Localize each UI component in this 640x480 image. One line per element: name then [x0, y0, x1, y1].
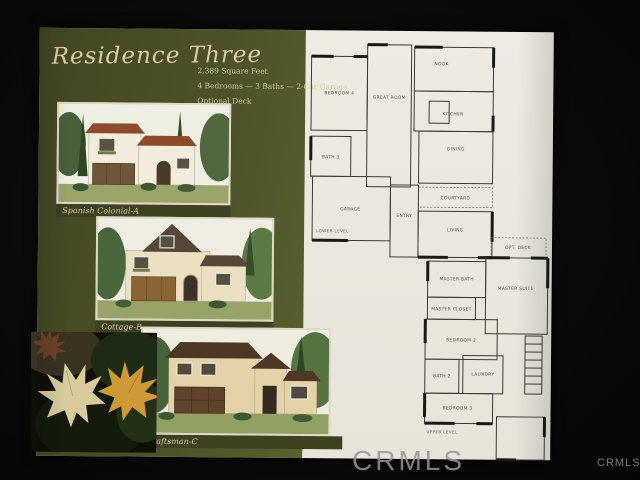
level-label-upper: UPPER LEVEL: [426, 429, 458, 434]
elevation-illustration-craftsman: [140, 327, 331, 437]
room-label-opt-deck: OPT. DECK: [505, 245, 531, 251]
floorplan-lower-level: BEDROOM 4 BATH 3 GREAT ROOM NOOK KITCHEN…: [308, 34, 510, 264]
elevation-card-craftsman: Craftsman-C: [140, 327, 331, 450]
room-label-bath2: BATH 2: [433, 373, 451, 379]
room-label-laundry: LAUNDRY: [471, 372, 494, 378]
room-label-entry: ENTRY: [396, 213, 412, 219]
elevation-illustration-cottage: [95, 216, 274, 322]
room-label-master-closet: MASTER CLOSET: [431, 306, 472, 312]
elevation-card-cottage: Cottage-B: [95, 216, 274, 335]
elevation-card-spanish-colonial: Spanish Colonial-A: [56, 102, 231, 219]
elevation-illustration-spanish-colonial: [56, 102, 231, 206]
spec-square-feet: 2,389 Square Feet: [197, 63, 317, 79]
room-label-bedroom3: BEDROOM 3: [443, 405, 473, 411]
room-label-bedroom2: BEDROOM 2: [446, 337, 476, 343]
room-label-dining: DINING: [447, 146, 465, 152]
room-label-kitchen: KITCHEN: [443, 111, 464, 117]
spec-beds-baths-garage: 4 Bedrooms — 3 Baths — 2-Car Garage: [197, 78, 317, 94]
leaves-photo: [30, 332, 157, 453]
room-label-master-suite: MASTER SUITE: [498, 286, 534, 292]
room-label-garage: GARAGE: [340, 206, 360, 212]
elevation-caption: Craftsman-C: [140, 435, 342, 450]
room-label-bath3: BATH 3: [322, 154, 340, 160]
brochure-page: Residence Three 2,389 Square Feet 4 Bedr…: [36, 28, 554, 460]
room-label-nook: NOOK: [434, 61, 448, 67]
room-label-master-bath: MASTER BATH: [439, 276, 474, 282]
room-label-bedroom4: BEDROOM 4: [324, 90, 354, 96]
room-label-courtyard: COURTYARD: [441, 195, 471, 201]
level-label-lower: LOWER LEVEL: [316, 228, 349, 233]
floorplan-upper-level: OPT. DECK MASTER BATH MASTER SUITE MASTE…: [421, 231, 553, 462]
crmls-watermark-corner: CRMLS: [597, 457, 640, 469]
spec-list: 2,389 Square Feet 4 Bedrooms — 3 Baths —…: [197, 63, 317, 109]
room-label-great-room: GREAT ROOM: [373, 95, 406, 101]
crmls-watermark: CRMLS: [352, 445, 465, 477]
